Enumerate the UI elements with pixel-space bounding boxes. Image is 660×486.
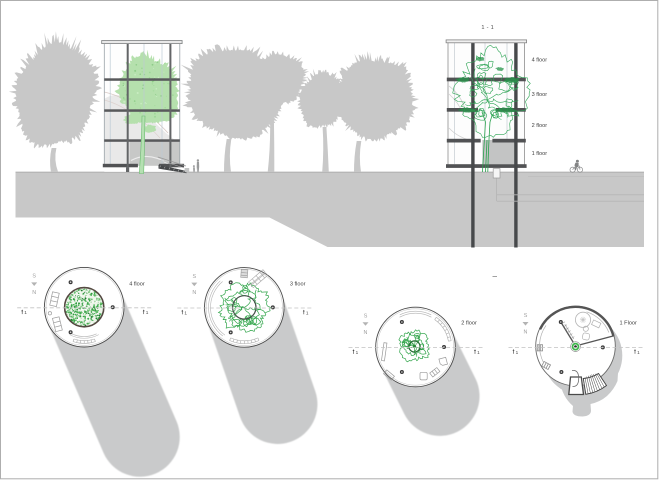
svg-text:2 floor: 2 floor xyxy=(461,321,477,327)
svg-text:1: 1 xyxy=(146,310,149,315)
svg-text:1 Floor: 1 Floor xyxy=(620,320,638,326)
svg-text:1: 1 xyxy=(356,350,359,355)
svg-text:1 - 1: 1 - 1 xyxy=(481,25,494,31)
svg-text:1: 1 xyxy=(516,350,519,355)
svg-text:S: S xyxy=(524,313,528,319)
svg-text:N: N xyxy=(32,290,36,296)
svg-text:1: 1 xyxy=(637,350,640,355)
svg-text:1: 1 xyxy=(477,350,480,355)
svg-text:4 floor: 4 floor xyxy=(532,57,548,63)
svg-text:2 floor: 2 floor xyxy=(532,123,548,129)
svg-text:S: S xyxy=(364,313,368,319)
svg-text:S: S xyxy=(32,274,36,280)
svg-text:S: S xyxy=(192,274,196,280)
svg-text:1 floor: 1 floor xyxy=(532,151,548,157)
svg-text:N: N xyxy=(364,330,368,336)
svg-text:3 floor: 3 floor xyxy=(290,282,306,288)
svg-text:N: N xyxy=(192,290,196,296)
svg-text:4 floor: 4 floor xyxy=(129,282,145,288)
svg-text:1: 1 xyxy=(184,310,187,315)
svg-text:N: N xyxy=(524,330,528,336)
svg-text:1: 1 xyxy=(24,310,27,315)
svg-text:3 floor: 3 floor xyxy=(532,92,548,98)
svg-text:1: 1 xyxy=(306,310,309,315)
